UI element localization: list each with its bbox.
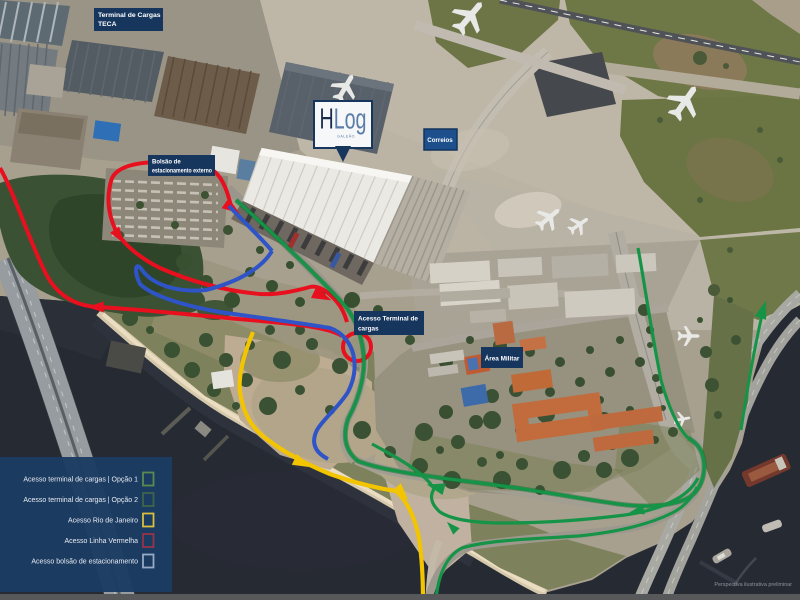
svg-text:estacionamento externo: estacionamento externo <box>152 169 212 175</box>
svg-text:Acesso bolsão de estacionament: Acesso bolsão de estacionamento <box>31 559 138 566</box>
svg-text:Acesso Rio de Janeiro: Acesso Rio de Janeiro <box>68 518 138 525</box>
svg-text:Terminal de Cargas: Terminal de Cargas <box>98 12 161 19</box>
svg-text:Acesso Linha Vermelha: Acesso Linha Vermelha <box>64 538 138 545</box>
svg-text:TECA: TECA <box>98 21 117 28</box>
svg-text:cargas: cargas <box>358 326 379 333</box>
svg-text:GALEÃO: GALEÃO <box>337 134 355 139</box>
svg-text:Acesso Terminal de: Acesso Terminal de <box>358 316 418 323</box>
svg-text:Área Militar: Área Militar <box>485 354 520 363</box>
svg-text:Acesso terminal de cargas | Op: Acesso terminal de cargas | Opção 1 <box>23 477 138 484</box>
svg-text:Correios: Correios <box>427 137 453 144</box>
svg-text:Perspectiva ilustrativa prelim: Perspectiva ilustrativa preliminar <box>714 582 792 588</box>
svg-text:Bolsão de: Bolsão de <box>152 160 181 166</box>
svg-text:Acesso terminal de cargas | Op: Acesso terminal de cargas | Opção 2 <box>23 497 138 504</box>
svg-text:HLog: HLog <box>320 104 367 136</box>
